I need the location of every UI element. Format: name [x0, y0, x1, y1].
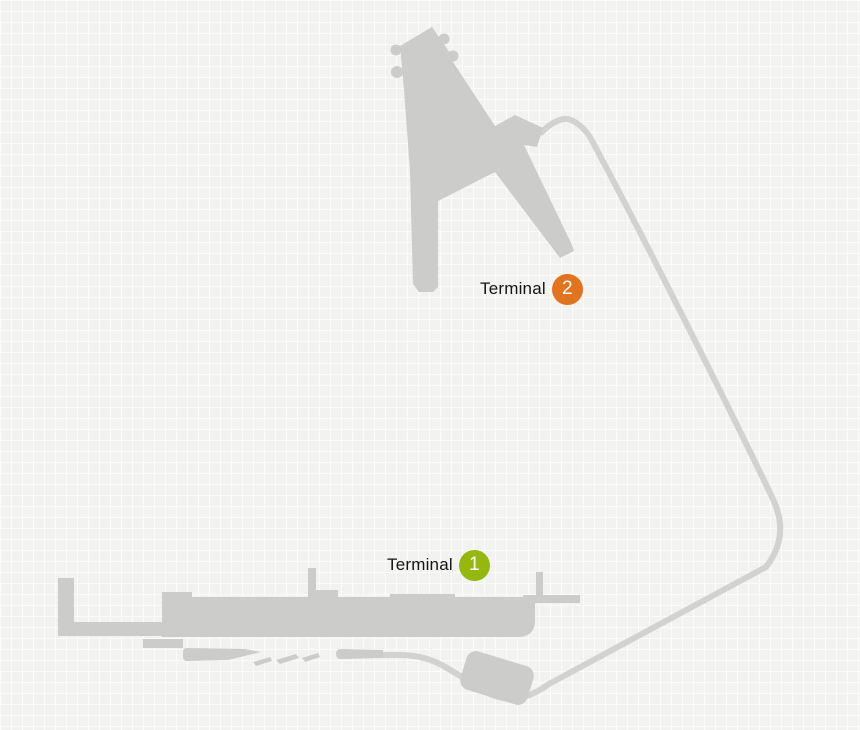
taxiway-mark [253, 657, 272, 666]
terminal-2-gate-bump [391, 45, 402, 56]
car-park-building [458, 649, 537, 708]
taxiway-mark [276, 654, 299, 664]
apron-block [143, 639, 183, 648]
terminal-2-gate-bump [391, 66, 403, 78]
terminal-2-marker[interactable]: Terminal 2 [480, 273, 583, 305]
terminal-1-label: Terminal [387, 555, 453, 575]
airport-map: Terminal 2 Terminal 1 [0, 0, 860, 730]
taxiway-blade [183, 648, 261, 661]
terminal-2-gate-bump [439, 34, 450, 45]
terminal-1-marker[interactable]: Terminal 1 [387, 549, 490, 581]
airport-map-graphics [0, 0, 860, 730]
terminal-2-label: Terminal [480, 279, 546, 299]
terminal-1-side-wing [523, 595, 580, 603]
terminal-1-tower-stub [536, 572, 543, 598]
taxiway-mark [302, 653, 320, 662]
taxiway-strip [336, 649, 383, 659]
terminal-1-badge[interactable]: 1 [459, 550, 490, 581]
terminal-2-gate-bump [448, 51, 459, 62]
terminal-2-badge[interactable]: 2 [552, 274, 583, 305]
terminal-2-building [400, 27, 574, 292]
